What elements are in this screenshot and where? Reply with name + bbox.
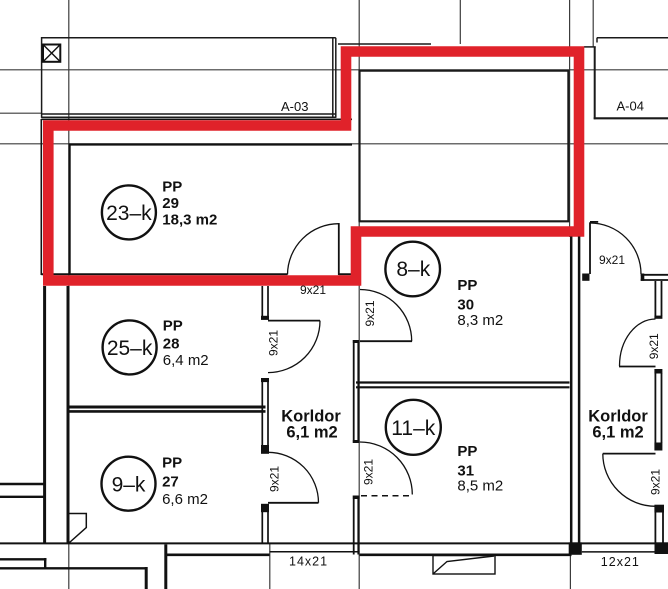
svg-text:14x21: 14x21 <box>289 555 328 569</box>
svg-text:9x21: 9x21 <box>599 253 625 267</box>
svg-text:PP: PP <box>162 455 182 472</box>
svg-text:9x21: 9x21 <box>268 466 282 492</box>
svg-text:6,1 m2: 6,1 m2 <box>592 423 643 441</box>
svg-text:25–k: 25–k <box>107 337 153 360</box>
svg-text:PP: PP <box>457 277 477 294</box>
svg-text:11–k: 11–k <box>391 417 435 440</box>
svg-text:28: 28 <box>163 336 180 353</box>
svg-text:A-03: A-03 <box>281 99 308 114</box>
svg-text:8,3 m2: 8,3 m2 <box>457 312 503 329</box>
svg-text:29: 29 <box>162 195 179 212</box>
svg-text:9x21: 9x21 <box>647 333 661 359</box>
svg-text:PP: PP <box>163 318 183 335</box>
svg-text:PP: PP <box>162 178 182 195</box>
svg-text:23–k: 23–k <box>106 202 152 225</box>
svg-text:6,1 m2: 6,1 m2 <box>286 423 337 441</box>
svg-text:9x21: 9x21 <box>300 283 326 297</box>
svg-text:8–k: 8–k <box>396 258 430 281</box>
svg-text:PP: PP <box>457 443 477 460</box>
svg-text:9x21: 9x21 <box>649 469 663 495</box>
svg-text:6,4 m2: 6,4 m2 <box>163 352 209 369</box>
svg-text:8,5 m2: 8,5 m2 <box>457 478 503 495</box>
svg-text:6,6 m2: 6,6 m2 <box>162 491 208 508</box>
svg-text:12x21: 12x21 <box>601 555 640 569</box>
svg-text:9x21: 9x21 <box>267 330 281 356</box>
svg-text:18,3 m2: 18,3 m2 <box>162 212 217 229</box>
svg-text:9x21: 9x21 <box>363 300 377 326</box>
svg-text:9x21: 9x21 <box>362 459 376 485</box>
svg-text:9–k: 9–k <box>112 474 146 497</box>
svg-text:A-04: A-04 <box>617 99 644 114</box>
svg-text:27: 27 <box>162 474 179 491</box>
